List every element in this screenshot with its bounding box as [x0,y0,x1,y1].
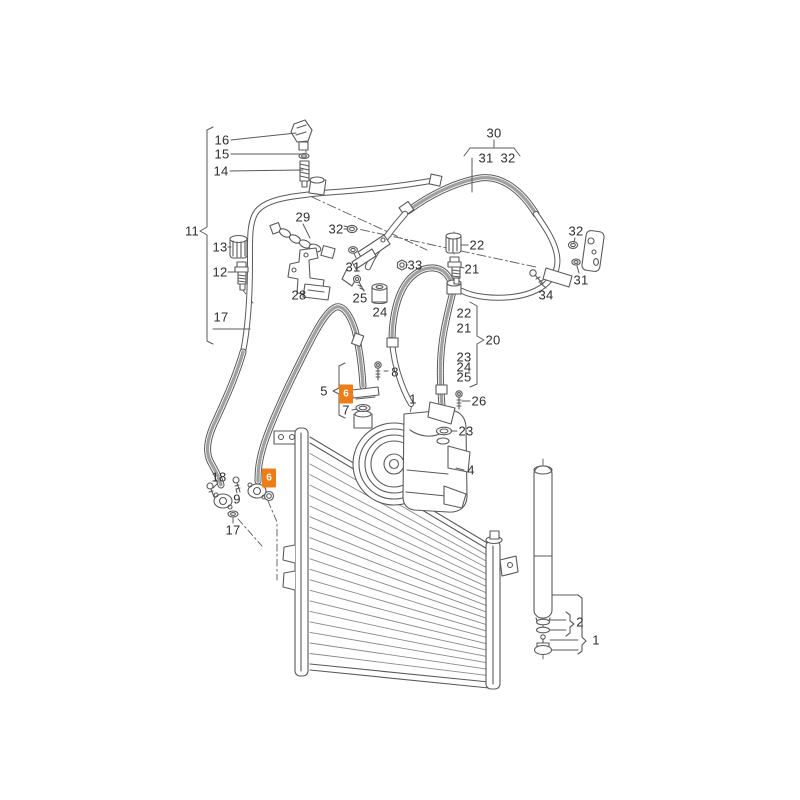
pipes-and-hoses [208,149,558,580]
drier-cap [535,643,552,655]
condenser-port-a [214,493,232,509]
callout-31-15[interactable]: 31 [478,152,493,165]
compressor [353,402,470,512]
callout-25-27[interactable]: 25 [456,371,471,384]
sleeve-24-left [372,284,387,304]
seal-ring-31-left [349,247,358,254]
callout-13-4[interactable]: 13 [212,241,227,254]
service-valve-12 [235,262,248,290]
callout-24-13[interactable]: 24 [372,306,387,319]
callout-17-6[interactable]: 17 [213,311,228,324]
seal-ring-17-condenser [228,511,238,517]
callout-5-30[interactable]: 5 [320,385,328,398]
mount-plate-right [581,230,604,272]
callout-23-33[interactable]: 23 [458,425,473,438]
callout-28-8[interactable]: 28 [291,289,306,302]
highlight-callout-6-0[interactable]: 6 [339,385,353,404]
callout-21-18[interactable]: 21 [464,263,479,276]
seal-ring-6-condenser [265,492,274,501]
pipe-fitting-sensor [309,177,326,195]
spring-14 [300,161,309,187]
callout-26-28[interactable]: 26 [471,395,486,408]
callout-22-17[interactable]: 22 [469,239,484,252]
receiver-drier [534,459,586,662]
callout-31-10[interactable]: 31 [345,261,360,274]
screw-34 [530,270,543,284]
callout-20-24[interactable]: 20 [485,334,500,347]
callout-16-0[interactable]: 16 [214,134,229,147]
valve-cap-13 [230,236,247,259]
callout-29-7[interactable]: 29 [295,211,310,224]
callout-1-39[interactable]: 1 [592,634,600,647]
callout-1-32[interactable]: 1 [409,393,417,406]
callout-14-2[interactable]: 14 [213,165,228,178]
bolt-26 [456,391,462,409]
bolt-8 [375,362,381,380]
bolt-18 [207,483,214,497]
callout-12-5[interactable]: 12 [212,266,227,279]
callout-15-1[interactable]: 15 [214,148,229,161]
callout-25-12[interactable]: 25 [352,292,367,305]
hose-20-low-pressure [387,268,461,427]
callout-17-37[interactable]: 17 [225,524,240,537]
seal-ring-32-right [568,242,577,249]
valve-cap-22 [446,233,461,253]
callout-34-21[interactable]: 34 [538,289,553,302]
seal-ring-23-compressor [437,427,452,435]
brace-20 [470,302,484,387]
diagram-line-art [0,0,800,800]
callout-8-29[interactable]: 8 [391,366,399,379]
brace-2 [566,612,574,636]
highlight-callout-6-1[interactable]: 6 [262,469,276,488]
callout-9-36[interactable]: 9 [233,493,241,506]
callout-32-19[interactable]: 32 [568,225,583,238]
callout-30-14[interactable]: 30 [486,127,501,140]
callout-32-16[interactable]: 32 [500,152,515,165]
nut-33 [398,260,407,270]
callout-22-22[interactable]: 22 [456,307,471,320]
seal-ring-31-right [572,259,580,265]
brace-11 [200,127,213,344]
parts-diagram-page: 1615141113121729283231332524303132222132… [0,0,800,800]
callout-31-20[interactable]: 31 [573,274,588,287]
callout-21-23[interactable]: 21 [456,322,471,335]
callout-33-11[interactable]: 33 [407,259,422,272]
callout-11-3[interactable]: 11 [185,225,199,238]
hose-left-return [208,352,243,485]
callout-32-9[interactable]: 32 [328,223,343,236]
pressure-sensor-16 [291,120,312,150]
callout-18-35[interactable]: 18 [211,471,226,484]
seal-ring-32-left [347,225,357,232]
callout-4-34[interactable]: 4 [467,464,475,477]
bolt-25-left [354,276,365,292]
callout-7-31[interactable]: 7 [342,404,350,417]
callout-2-38[interactable]: 2 [576,616,584,629]
seal-ring-7 [356,405,370,412]
